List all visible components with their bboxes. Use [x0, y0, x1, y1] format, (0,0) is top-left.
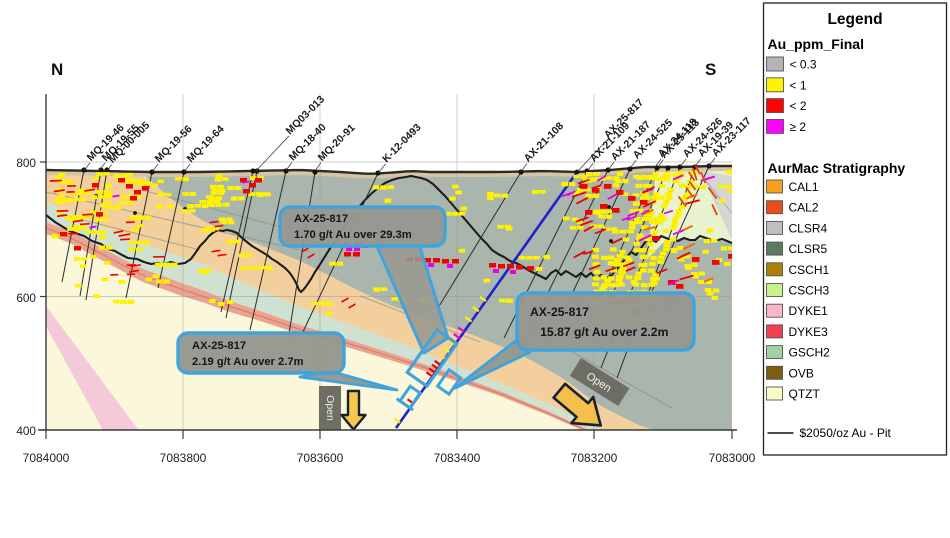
svg-text:AX-25-817: AX-25-817 [294, 213, 348, 225]
svg-text:AX-25-817: AX-25-817 [192, 340, 246, 352]
svg-text:Open: Open [324, 395, 336, 421]
svg-text:7084000: 7084000 [23, 451, 70, 465]
svg-text:< 2: < 2 [790, 99, 807, 113]
svg-text:Legend: Legend [827, 11, 882, 28]
svg-text:1.70 g/t Au over 29.3m: 1.70 g/t Au over 29.3m [294, 229, 412, 241]
svg-text:$2050/oz Au - Pit: $2050/oz Au - Pit [800, 426, 892, 440]
svg-text:GSCH2: GSCH2 [789, 346, 831, 360]
svg-text:AurMac Stratigraphy: AurMac Stratigraphy [768, 160, 906, 176]
svg-text:N: N [51, 60, 63, 79]
svg-text:OVB: OVB [789, 366, 814, 380]
svg-text:CSCH3: CSCH3 [789, 284, 830, 298]
svg-text:600: 600 [16, 291, 36, 305]
svg-text:CSCH1: CSCH1 [789, 263, 830, 277]
svg-text:7083800: 7083800 [160, 451, 207, 465]
svg-text:Au_ppm_Final: Au_ppm_Final [768, 36, 864, 52]
svg-text:CLSR4: CLSR4 [789, 221, 828, 235]
svg-text:< 1: < 1 [790, 78, 807, 92]
svg-text:7083200: 7083200 [571, 451, 618, 465]
svg-text:S: S [705, 60, 716, 79]
svg-text:15.87 g/t Au over 2.2m: 15.87 g/t Au over 2.2m [530, 325, 669, 339]
svg-text:≥ 2: ≥ 2 [790, 120, 807, 134]
svg-text:QTZT: QTZT [789, 387, 821, 401]
svg-text:CLSR5: CLSR5 [789, 242, 828, 256]
svg-text:AX-25-817: AX-25-817 [530, 305, 589, 319]
svg-text:CAL1: CAL1 [789, 180, 819, 194]
svg-text:CAL2: CAL2 [789, 201, 819, 215]
svg-text:DYKE3: DYKE3 [789, 325, 829, 339]
svg-text:400: 400 [16, 424, 36, 438]
svg-text:DYKE1: DYKE1 [789, 304, 829, 318]
svg-text:7083000: 7083000 [709, 451, 756, 465]
svg-text:7083400: 7083400 [434, 451, 481, 465]
svg-text:800: 800 [16, 156, 36, 170]
svg-text:2.19 g/t Au over 2.7m: 2.19 g/t Au over 2.7m [192, 356, 304, 368]
svg-text:7083600: 7083600 [297, 451, 344, 465]
svg-text:< 0.3: < 0.3 [790, 58, 817, 72]
